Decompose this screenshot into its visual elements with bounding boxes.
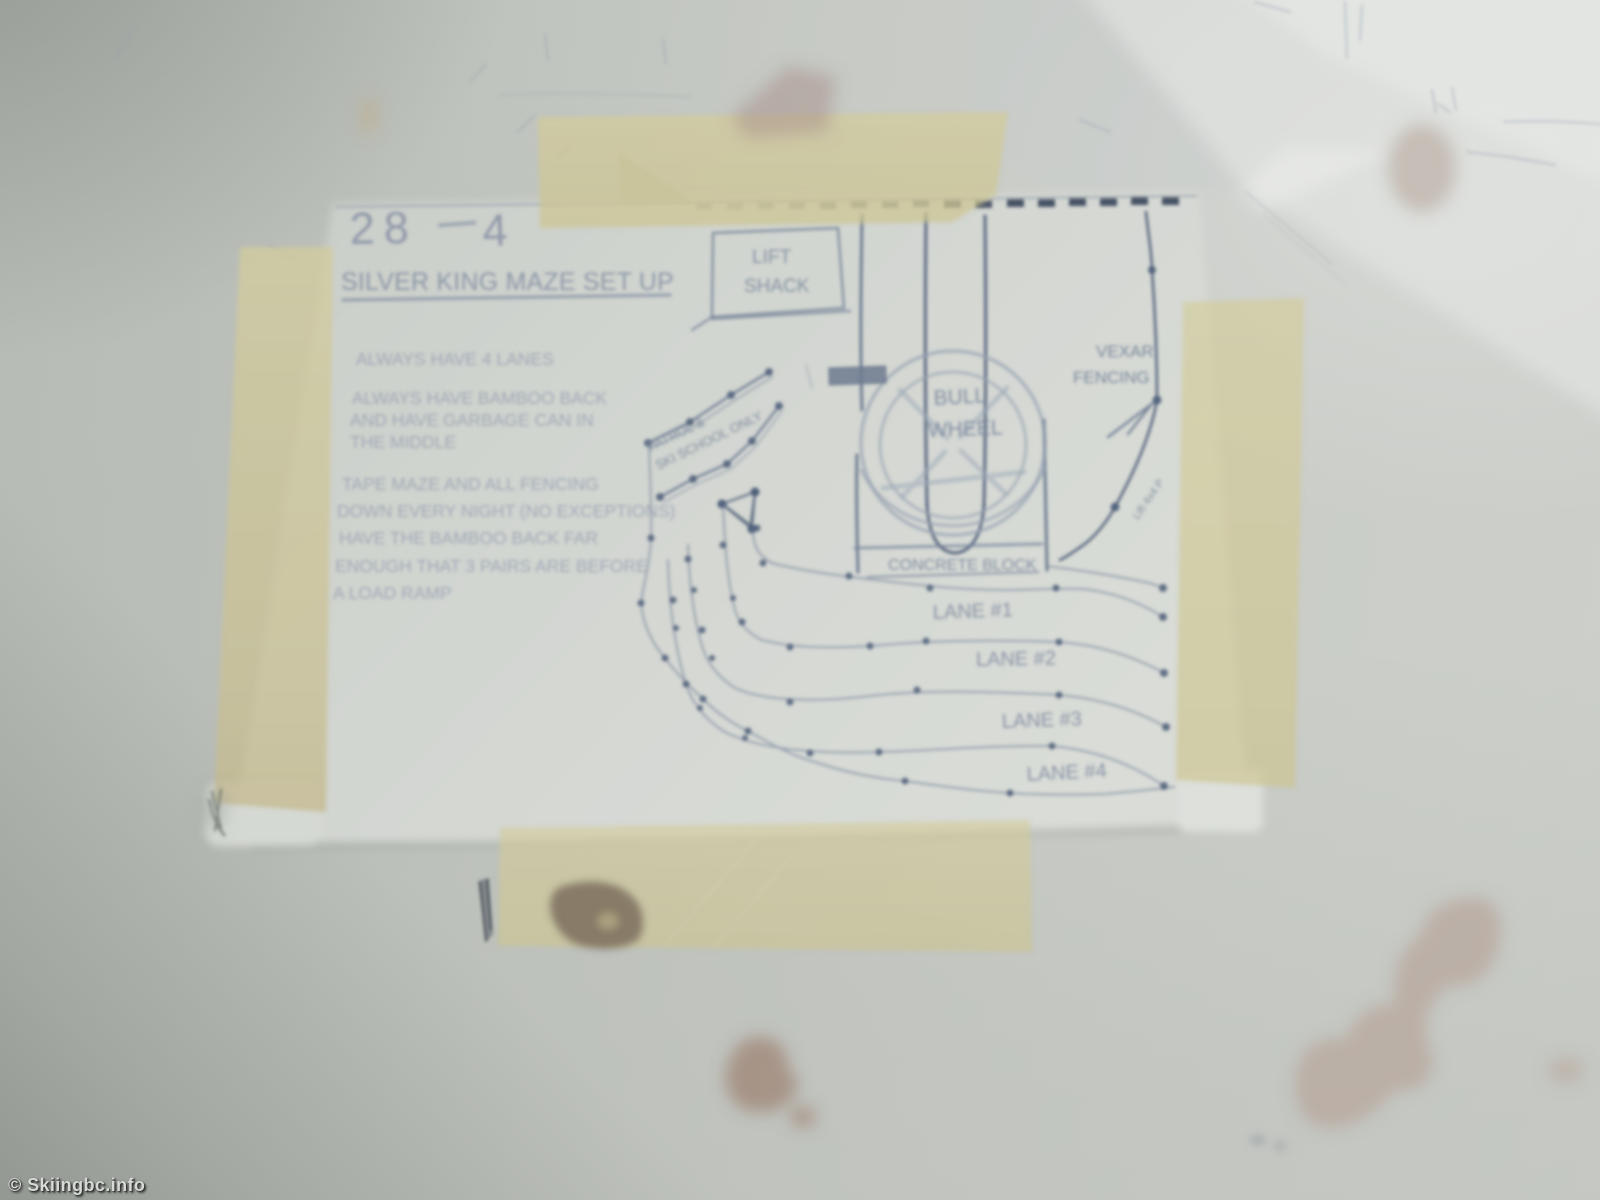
svg-text:LIFT: LIFT [752,247,791,268]
svg-text:ALWAYS HAVE BAMBOO BACK: ALWAYS HAVE BAMBOO BACK [352,388,607,408]
svg-text:ENOUGH THAT 3 PAIRS ARE BEFORE: ENOUGH THAT 3 PAIRS ARE BEFORE [335,556,648,576]
svg-text:THE MIDDLE: THE MIDDLE [350,432,456,452]
svg-text:FENCING: FENCING [1073,368,1150,387]
svg-text:28: 28 [349,202,418,254]
svg-text:BULL: BULL [933,384,987,410]
svg-text:VEXAR: VEXAR [1096,342,1154,361]
svg-text:A LOAD RAMP: A LOAD RAMP [333,583,452,603]
svg-text:ALWAYS HAVE 4 LANES: ALWAYS HAVE 4 LANES [356,349,554,369]
svg-text:LANE #3: LANE #3 [1001,708,1082,733]
svg-text:SILVER KING MAZE SET UP: SILVER KING MAZE SET UP [341,268,674,296]
svg-text:4: 4 [482,204,509,256]
svg-text:SHACK: SHACK [744,276,810,297]
svg-text:TAPE MAZE AND ALL FENCING: TAPE MAZE AND ALL FENCING [342,474,599,494]
svg-text:DOWN EVERY NIGHT (NO EXCEPTION: DOWN EVERY NIGHT (NO EXCEPTIONS) [337,501,675,521]
svg-text:LANE #2: LANE #2 [976,648,1056,671]
svg-text:WHEEL: WHEEL [927,416,1002,442]
svg-text:LANE #1: LANE #1 [932,599,1013,624]
svg-text:AND HAVE GARBAGE CAN IN: AND HAVE GARBAGE CAN IN [350,410,594,430]
svg-text:CONCRETE BLOCK: CONCRETE BLOCK [888,557,1037,574]
svg-text:HAVE THE BAMBOO BACK FAR: HAVE THE BAMBOO BACK FAR [339,528,598,548]
svg-text:LANE #4: LANE #4 [1026,760,1107,786]
